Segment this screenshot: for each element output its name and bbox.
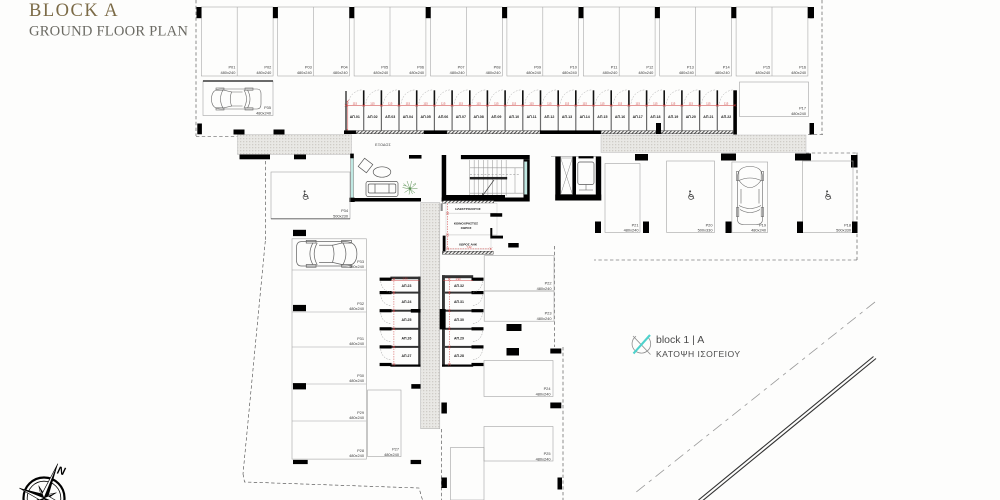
svg-text:115: 115 bbox=[423, 101, 428, 105]
svg-text:7.42: 7.42 bbox=[466, 245, 472, 249]
svg-text:ΑΠ.20: ΑΠ.20 bbox=[686, 115, 696, 119]
svg-text:P17480x240: P17480x240 bbox=[791, 106, 807, 116]
svg-text:P32480x240: P32480x240 bbox=[349, 301, 365, 311]
svg-text:ΑΠ.16: ΑΠ.16 bbox=[615, 115, 625, 119]
svg-text:ΑΠ.08: ΑΠ.08 bbox=[474, 115, 484, 119]
svg-text:ΑΠ.01: ΑΠ.01 bbox=[350, 115, 360, 119]
svg-text:P11480x240: P11480x240 bbox=[602, 65, 618, 75]
svg-text:P27480x240: P27480x240 bbox=[384, 447, 400, 457]
svg-text:N: N bbox=[56, 465, 68, 479]
svg-text:ΑΠ.03: ΑΠ.03 bbox=[385, 115, 395, 119]
svg-text:P21480x240: P21480x240 bbox=[624, 223, 640, 233]
svg-text:115: 115 bbox=[582, 101, 587, 105]
svg-text:ΑΠ.31: ΑΠ.31 bbox=[454, 300, 464, 304]
svg-text:115: 115 bbox=[600, 101, 605, 105]
svg-text:ΑΠ.24: ΑΠ.24 bbox=[402, 300, 412, 304]
svg-text:P08480x240: P08480x240 bbox=[486, 65, 502, 75]
svg-text:ΑΠ.13: ΑΠ.13 bbox=[562, 115, 572, 119]
svg-text:ΚΟΙΝΟΧΡΗΣΤΟΣΧΩΡΟΣ: ΚΟΙΝΟΧΡΗΣΤΟΣΧΩΡΟΣ bbox=[454, 222, 478, 231]
svg-text:ΑΠ.17: ΑΠ.17 bbox=[633, 115, 643, 119]
svg-text:115: 115 bbox=[706, 101, 711, 105]
svg-text:115: 115 bbox=[671, 101, 676, 105]
svg-text:ΕΞΟΔΟΣ: ΕΞΟΔΟΣ bbox=[375, 143, 391, 147]
svg-text:ΚΑΤΟΨΗ ΙΣΟΓΕΙΟΥ: ΚΑΤΟΨΗ ΙΣΟΓΕΙΟΥ bbox=[656, 349, 741, 359]
svg-text:ΑΠ.02: ΑΠ.02 bbox=[367, 115, 377, 119]
svg-text:ΑΠ.04: ΑΠ.04 bbox=[403, 115, 413, 119]
svg-text:P03480x240: P03480x240 bbox=[297, 65, 313, 75]
svg-text:P20500x330: P20500x330 bbox=[698, 223, 714, 233]
svg-text:115: 115 bbox=[689, 101, 694, 105]
svg-text:115: 115 bbox=[353, 101, 358, 105]
svg-text:P25480x240: P25480x240 bbox=[536, 451, 552, 461]
svg-text:P19480x240: P19480x240 bbox=[751, 223, 767, 233]
svg-text:P30480x240: P30480x240 bbox=[349, 373, 365, 383]
svg-text:ΑΠ.15: ΑΠ.15 bbox=[597, 115, 607, 119]
svg-text:P12480x240: P12480x240 bbox=[638, 65, 654, 75]
svg-text:P15480x240: P15480x240 bbox=[755, 65, 771, 75]
svg-text:P18500x330: P18500x330 bbox=[836, 223, 852, 233]
svg-text:115: 115 bbox=[406, 101, 411, 105]
svg-text:ΑΠ.29: ΑΠ.29 bbox=[454, 336, 464, 340]
svg-text:ΑΠ.07: ΑΠ.07 bbox=[456, 115, 466, 119]
svg-text:ΑΠ.05: ΑΠ.05 bbox=[421, 115, 431, 119]
svg-text:P13480x240: P13480x240 bbox=[679, 65, 695, 75]
svg-text:P23480x240: P23480x240 bbox=[537, 311, 553, 321]
svg-text:ΑΠ.30: ΑΠ.30 bbox=[454, 318, 464, 322]
svg-text:ΑΠ.18: ΑΠ.18 bbox=[650, 115, 660, 119]
svg-text:115: 115 bbox=[441, 101, 446, 105]
svg-text:P14480x240: P14480x240 bbox=[715, 65, 731, 75]
svg-text:ΑΠ.19: ΑΠ.19 bbox=[668, 115, 678, 119]
svg-text:ΑΠ.26: ΑΠ.26 bbox=[402, 336, 412, 340]
svg-text:ΑΠ.27: ΑΠ.27 bbox=[402, 354, 412, 358]
svg-text:ΗΛΕΚΤΡΟΛΟΓΟΣ: ΗΛΕΚΤΡΟΛΟΓΟΣ bbox=[455, 207, 481, 211]
svg-text:P09480x240: P09480x240 bbox=[526, 65, 542, 75]
svg-text:115: 115 bbox=[388, 101, 393, 105]
svg-text:ΑΠ.22: ΑΠ.22 bbox=[721, 115, 731, 119]
svg-text:1.90: 1.90 bbox=[402, 277, 408, 281]
svg-text:115: 115 bbox=[724, 101, 729, 105]
svg-text:P31480x240: P31480x240 bbox=[349, 336, 365, 346]
svg-text:P24480x240: P24480x240 bbox=[536, 386, 552, 396]
svg-text:ΑΠ.12: ΑΠ.12 bbox=[544, 115, 554, 119]
svg-text:block 1 | A: block 1 | A bbox=[656, 334, 704, 346]
svg-text:P04480x240: P04480x240 bbox=[333, 65, 349, 75]
svg-text:P06480x240: P06480x240 bbox=[409, 65, 425, 75]
svg-text:ΑΠ.06: ΑΠ.06 bbox=[438, 115, 448, 119]
svg-text:115: 115 bbox=[494, 101, 499, 105]
svg-text:115: 115 bbox=[512, 101, 517, 105]
svg-text:ΑΠ.14: ΑΠ.14 bbox=[580, 115, 590, 119]
svg-text:P35480x240: P35480x240 bbox=[256, 105, 272, 115]
svg-text:P05480x240: P05480x240 bbox=[373, 65, 389, 75]
svg-text:115: 115 bbox=[618, 101, 623, 105]
svg-text:115: 115 bbox=[370, 101, 375, 105]
svg-text:115: 115 bbox=[529, 101, 534, 105]
svg-text:P34500x230: P34500x230 bbox=[333, 208, 349, 218]
svg-text:ΑΠ.25: ΑΠ.25 bbox=[402, 318, 412, 322]
svg-text:ΑΠ.11: ΑΠ.11 bbox=[527, 115, 537, 119]
svg-text:P07480x240: P07480x240 bbox=[450, 65, 466, 75]
svg-text:P28480x240: P28480x240 bbox=[349, 448, 365, 458]
svg-text:P10480x240: P10480x240 bbox=[562, 65, 578, 75]
svg-text:115: 115 bbox=[476, 101, 481, 105]
svg-text:P02480x240: P02480x240 bbox=[256, 65, 272, 75]
svg-text:ΑΠ.21: ΑΠ.21 bbox=[703, 115, 713, 119]
svg-text:115: 115 bbox=[565, 101, 570, 105]
svg-text:P16480x240: P16480x240 bbox=[791, 65, 807, 75]
svg-text:115: 115 bbox=[459, 101, 464, 105]
svg-text:BLOCK A: BLOCK A bbox=[29, 1, 119, 21]
svg-text:115: 115 bbox=[635, 101, 640, 105]
svg-text:P01480x240: P01480x240 bbox=[220, 65, 236, 75]
svg-text:P33480x240: P33480x240 bbox=[349, 259, 365, 269]
svg-text:ΑΠ.32: ΑΠ.32 bbox=[454, 284, 464, 288]
svg-text:ΑΠ.23: ΑΠ.23 bbox=[402, 284, 412, 288]
svg-text:ΑΠ.28: ΑΠ.28 bbox=[454, 354, 464, 358]
svg-text:GROUND FLOOR PLAN: GROUND FLOOR PLAN bbox=[29, 24, 188, 40]
svg-text:P29480x240: P29480x240 bbox=[349, 410, 365, 420]
svg-text:115: 115 bbox=[653, 101, 658, 105]
svg-text:115: 115 bbox=[547, 101, 552, 105]
svg-text:ΑΠ.10: ΑΠ.10 bbox=[509, 115, 519, 119]
svg-text:ΑΠ.09: ΑΠ.09 bbox=[491, 115, 501, 119]
svg-text:1.90: 1.90 bbox=[455, 277, 461, 281]
svg-text:P22480x240: P22480x240 bbox=[537, 281, 553, 291]
